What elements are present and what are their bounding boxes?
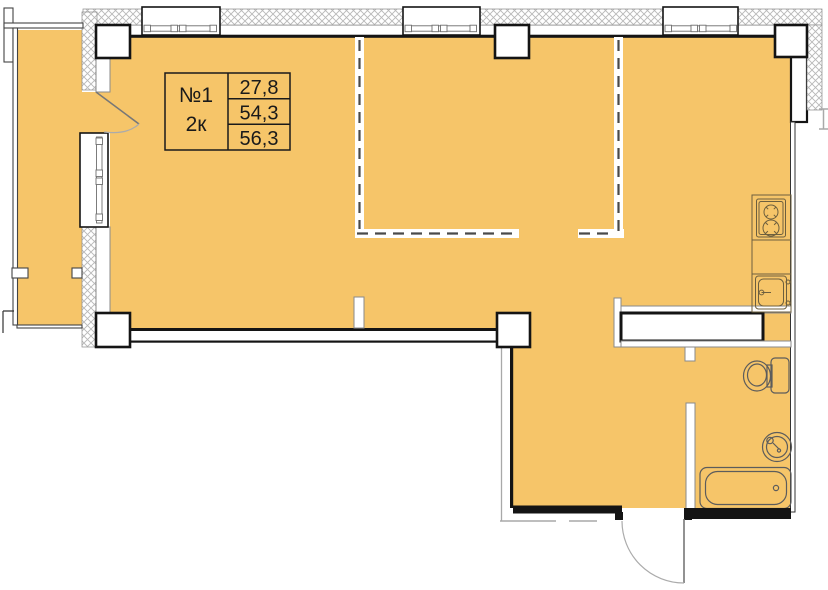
balcony-window-frame — [80, 133, 108, 227]
wardrobe-stub — [685, 347, 695, 361]
balcony-left-rail — [13, 28, 18, 325]
balcony-rail-tab-right — [72, 268, 82, 278]
column — [96, 313, 130, 347]
unit-area-1: 27,8 — [240, 77, 279, 99]
column — [495, 25, 529, 58]
balcony-bottom-rail — [17, 325, 82, 328]
window-3 — [663, 7, 738, 35]
balcony-door-passage — [82, 92, 110, 133]
wall-face-strip-lower — [96, 227, 110, 313]
window-1 — [142, 7, 220, 35]
door-jamb-left — [615, 512, 623, 520]
door-jamb-right — [684, 512, 692, 520]
balcony-window-mullion — [96, 214, 103, 221]
balcony-window-mullion — [96, 138, 103, 145]
column — [775, 25, 807, 57]
balcony-corner-post — [4, 8, 13, 62]
wall-face-strip-upper — [96, 58, 110, 92]
right-insulated-wall — [807, 25, 822, 110]
apartment-floor-area — [18, 30, 792, 508]
entrance-door-arc — [622, 521, 684, 583]
unit-rooms: 2к — [186, 113, 208, 136]
balcony-window — [80, 133, 108, 227]
wardrobe-body — [621, 313, 763, 341]
column — [497, 313, 530, 347]
right-facade-tab — [819, 109, 828, 129]
washbasin-icon — [763, 433, 792, 462]
wall-stub — [354, 297, 364, 328]
balcony-rail-tab-left — [12, 268, 28, 278]
living-room-bottom-wall — [110, 328, 497, 343]
balcony-top-rail — [4, 23, 83, 28]
window-2 — [403, 7, 480, 35]
floor-plan: №1 2к 27,8 54,3 56,3 — [0, 0, 828, 590]
balcony-window-mullion — [96, 170, 103, 177]
unit-area-3: 56,3 — [240, 128, 279, 150]
column — [96, 25, 130, 58]
entrance-door — [622, 519, 684, 583]
balcony-floor — [18, 30, 83, 325]
balcony-window-mullion — [96, 178, 103, 185]
unit-number: №1 — [179, 84, 213, 107]
bathroom-partition-wall — [686, 403, 695, 513]
unit-area-2: 54,3 — [240, 103, 279, 125]
hall-left-wall — [502, 347, 514, 521]
balcony-corner-angle — [3, 311, 14, 333]
right-wall-lower — [791, 122, 796, 512]
